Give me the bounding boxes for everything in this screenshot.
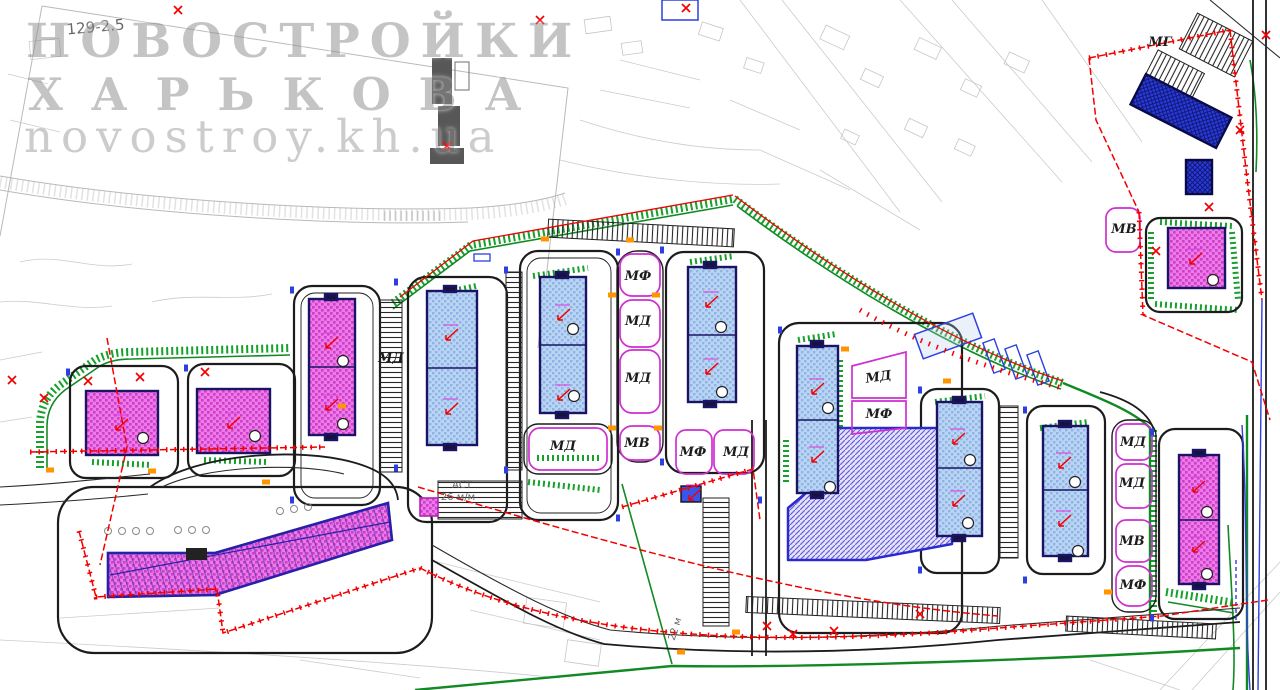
plan-note: 26 м/м	[441, 492, 475, 503]
plan-note: АСТ	[452, 480, 473, 491]
building-magenta-2	[197, 389, 270, 453]
site-plan-svg: МФМДМДМВМФМДМДМДМДМФМДМДМВМФМВМГ 129-2.5…	[0, 0, 1280, 690]
site-plan-canvas: МФМДМДМВМФМДМДМДМДМФМДМДМВМФМВМГ 129-2.5…	[0, 0, 1280, 690]
notes-layer: 129-2.5АСТ26 м/м22 м	[66, 16, 685, 643]
survey-point-circles	[105, 504, 312, 535]
plan-note: 22 м	[667, 616, 685, 642]
building-magenta-4	[1179, 450, 1219, 589]
zone-label: МФ	[624, 269, 652, 284]
zone-label: МД	[377, 351, 404, 366]
zone-label: МД	[1118, 476, 1145, 491]
zone-label: МД	[1119, 435, 1146, 450]
buildings	[86, 74, 1231, 597]
zone-label: МВ	[623, 436, 649, 451]
zone-label: МД	[864, 368, 893, 387]
building-magenta-3	[309, 294, 355, 440]
building-blue-5	[937, 397, 982, 541]
kiosk-black	[186, 548, 207, 560]
zone-label: МД	[722, 445, 749, 460]
zone-label: МВ	[1118, 534, 1144, 549]
building-garage	[108, 503, 392, 597]
zone-label: МГ	[1147, 35, 1172, 50]
zone-label: МД	[624, 371, 651, 386]
building-blue-4	[797, 341, 838, 498]
zone-label: МВ	[1110, 222, 1136, 237]
zone-label: МФ	[1119, 578, 1147, 593]
building-darkblue-small	[1186, 160, 1212, 194]
building-blue-6	[1043, 421, 1088, 561]
zone-label: МД	[549, 439, 576, 454]
zone-label: МФ	[679, 445, 707, 460]
transformer-magenta	[420, 498, 438, 516]
zone-label: МД	[624, 314, 651, 329]
building-blue-1	[427, 286, 477, 450]
zone-label: МФ	[865, 407, 893, 422]
building-blue-3	[688, 262, 736, 407]
plan-note: 129-2.5	[66, 16, 125, 39]
